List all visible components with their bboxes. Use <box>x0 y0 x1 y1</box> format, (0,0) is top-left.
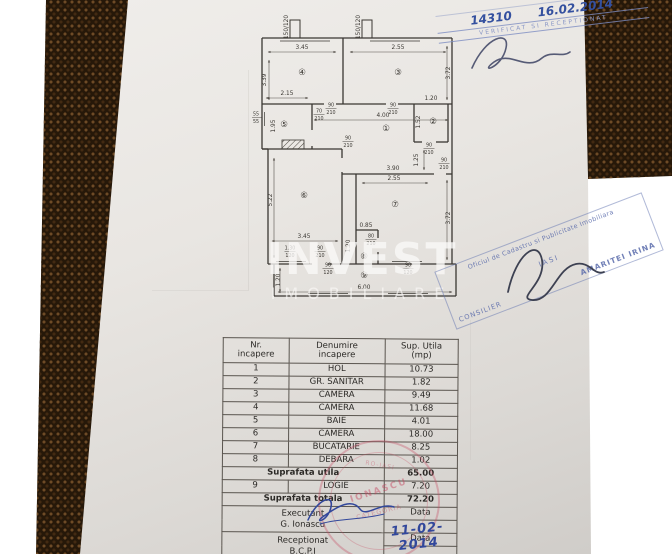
watermark-line-2: IMOBILIARE <box>262 284 462 303</box>
cell-nr: 9 <box>222 480 288 493</box>
dimension-label: 3.39 <box>262 73 268 86</box>
col-header-sup: Sup. Utila(mp) <box>385 339 458 365</box>
svg-text:3.72: 3.72 <box>446 211 452 224</box>
svg-text:3.45: 3.45 <box>296 45 309 51</box>
svg-text:2.55: 2.55 <box>388 176 401 182</box>
cell-nr: 7 <box>222 441 288 454</box>
svg-text:90: 90 <box>426 143 432 149</box>
svg-text:210: 210 <box>343 143 352 149</box>
total-utila-value: 65.00 <box>384 468 457 482</box>
svg-text:210: 210 <box>424 150 433 156</box>
room-number-label: ⑥ <box>300 191 308 201</box>
dimension-label: 4.00 <box>377 113 390 119</box>
photo-of-floorplan-document: 3.452.553.393.722.151.955555702109021090… <box>0 0 672 554</box>
cell-name: HOL <box>289 363 385 377</box>
cell-area: 1.02 <box>384 455 457 469</box>
cell-name: CAMERA <box>289 402 385 416</box>
dimension-label: 150/120 <box>356 15 362 39</box>
signature-top-right <box>462 26 582 86</box>
svg-text:210: 210 <box>314 116 323 122</box>
svg-text:70: 70 <box>316 109 322 115</box>
room-number-label: ③ <box>394 68 402 78</box>
dimension-label: 90210 <box>343 136 354 149</box>
svg-text:90: 90 <box>441 158 447 164</box>
svg-text:55: 55 <box>253 119 259 125</box>
room-number-label: ① <box>382 124 390 134</box>
signature-ocpi <box>494 232 614 312</box>
cell-name: GR. SANITAR <box>289 376 385 390</box>
dimension-label: 5555 <box>252 112 262 125</box>
vent-stack <box>290 20 300 38</box>
svg-text:3.39: 3.39 <box>262 73 268 86</box>
cell-area: 9.49 <box>385 390 458 404</box>
cell-name: CAMERA <box>289 389 385 403</box>
room-number-label: ④ <box>298 68 306 78</box>
dimension-label: 2.15 <box>281 91 294 97</box>
cell-area: 1.82 <box>385 377 458 391</box>
svg-text:210: 210 <box>439 165 448 171</box>
dimension-label: 2.55 <box>388 176 401 182</box>
svg-text:90: 90 <box>328 103 334 109</box>
cell-nr: 2 <box>223 376 289 389</box>
svg-text:210: 210 <box>326 110 335 116</box>
dimension-label: 90210 <box>424 143 435 156</box>
col-header-denumire: Denumireincapere <box>289 338 385 364</box>
room-number-label: ⑤ <box>280 120 288 130</box>
svg-text:1.20: 1.20 <box>425 96 438 102</box>
cell-nr: 4 <box>223 402 289 415</box>
cell-area: 8.25 <box>384 442 457 456</box>
dimension-label: 1.95 <box>271 119 277 132</box>
col-header-nr: Nr.incapere <box>223 338 289 363</box>
dimension-label: 2.55 <box>392 45 405 51</box>
svg-text:3.72: 3.72 <box>446 66 452 79</box>
svg-text:150/120: 150/120 <box>356 15 362 39</box>
dimension-label: 90210 <box>439 158 450 171</box>
svg-text:2.15: 2.15 <box>281 91 294 97</box>
dimension-label: 5.22 <box>268 193 274 206</box>
svg-text:1.52: 1.52 <box>416 115 422 128</box>
carpet-background-top-right <box>574 0 672 179</box>
total-utila-label: Suprafata utila <box>222 467 384 481</box>
dimension-label: 150/120 <box>284 15 290 39</box>
dimension-label: 90210 <box>326 103 337 116</box>
svg-text:4.00: 4.00 <box>377 113 390 119</box>
cell-area: 4.01 <box>384 416 457 430</box>
dimension-label: 1.52 <box>416 115 422 128</box>
svg-text:1.25: 1.25 <box>414 153 420 166</box>
hatched-wall-block <box>282 140 304 149</box>
dimension-label: 3.90 <box>387 166 400 172</box>
svg-text:210: 210 <box>388 110 397 116</box>
cell-nr: 3 <box>223 389 289 402</box>
cell-nr: 5 <box>223 415 289 428</box>
cell-area: 11.68 <box>384 403 457 417</box>
cell-nr: 1 <box>223 363 289 376</box>
dimension-label: 3.72 <box>446 211 452 224</box>
cell-area: 18.00 <box>384 429 457 443</box>
dimension-label: 1.20 <box>425 96 438 102</box>
dimension-label: 3.72 <box>446 66 452 79</box>
svg-text:0.85: 0.85 <box>360 223 373 229</box>
svg-text:55: 55 <box>253 112 259 118</box>
dimension-label: 1.25 <box>414 153 420 166</box>
svg-text:90: 90 <box>345 136 351 142</box>
svg-text:2.55: 2.55 <box>392 45 405 51</box>
room-number-label: ⑦ <box>391 200 399 210</box>
svg-text:1.95: 1.95 <box>271 119 277 132</box>
svg-text:90: 90 <box>390 103 396 109</box>
dimension-label: 3.45 <box>296 45 309 51</box>
cell-name: BAIE <box>288 415 384 429</box>
cell-nr: 6 <box>223 428 289 441</box>
cell-name: CAMERA <box>288 428 384 442</box>
vent-stack <box>362 20 372 38</box>
cell-name: DEBARA <box>288 454 384 468</box>
room-number-label: ② <box>429 117 437 127</box>
cell-area: 10.73 <box>385 364 458 378</box>
dimension-label: 70210 <box>314 109 325 122</box>
svg-text:150/120: 150/120 <box>284 15 290 39</box>
cell-nr: 8 <box>222 454 288 467</box>
dimension-label: 0.85 <box>360 223 373 229</box>
watermark-line-1: INVEST <box>262 238 462 282</box>
svg-text:5.22: 5.22 <box>268 193 274 206</box>
watermark: INVEST IMOBILIARE <box>262 238 462 303</box>
receptionat-cell: ReceptionatB.C.P.I <box>222 532 384 554</box>
svg-text:3.90: 3.90 <box>387 166 400 172</box>
cell-name: BUCATARIE <box>288 441 384 455</box>
table-header-row: Nr.incapere Denumireincapere Sup. Utila(… <box>223 338 458 365</box>
